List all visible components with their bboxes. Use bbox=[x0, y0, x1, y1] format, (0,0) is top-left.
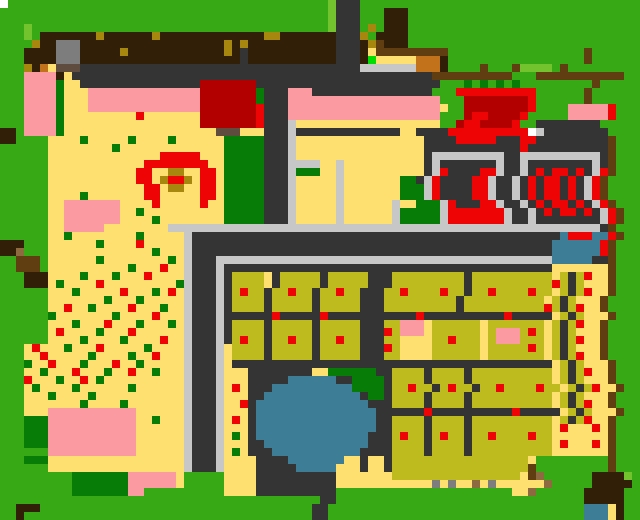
orchard-top-band[interactable] bbox=[40, 32, 336, 64]
pink-blanket-large[interactable] bbox=[48, 408, 136, 456]
dock-bottom-right[interactable] bbox=[600, 472, 640, 520]
crop-plots-left[interactable] bbox=[232, 264, 376, 360]
pink-blanket-top[interactable] bbox=[64, 200, 120, 232]
market-stall-left[interactable] bbox=[440, 152, 512, 232]
path-top-horizontal[interactable] bbox=[80, 64, 440, 96]
market-stall-right[interactable] bbox=[528, 152, 608, 232]
flower-stand-right[interactable] bbox=[560, 264, 616, 464]
red-house-right[interactable] bbox=[464, 88, 544, 140]
grey-shed[interactable] bbox=[56, 40, 80, 64]
game-map bbox=[0, 0, 640, 520]
blue-kiosk[interactable] bbox=[560, 224, 608, 264]
flower-field[interactable] bbox=[24, 72, 224, 384]
pink-blanket-small[interactable] bbox=[128, 472, 176, 496]
pond[interactable] bbox=[256, 376, 384, 472]
path-main-vertical[interactable] bbox=[264, 64, 288, 232]
crop-plots-right[interactable] bbox=[392, 264, 560, 464]
